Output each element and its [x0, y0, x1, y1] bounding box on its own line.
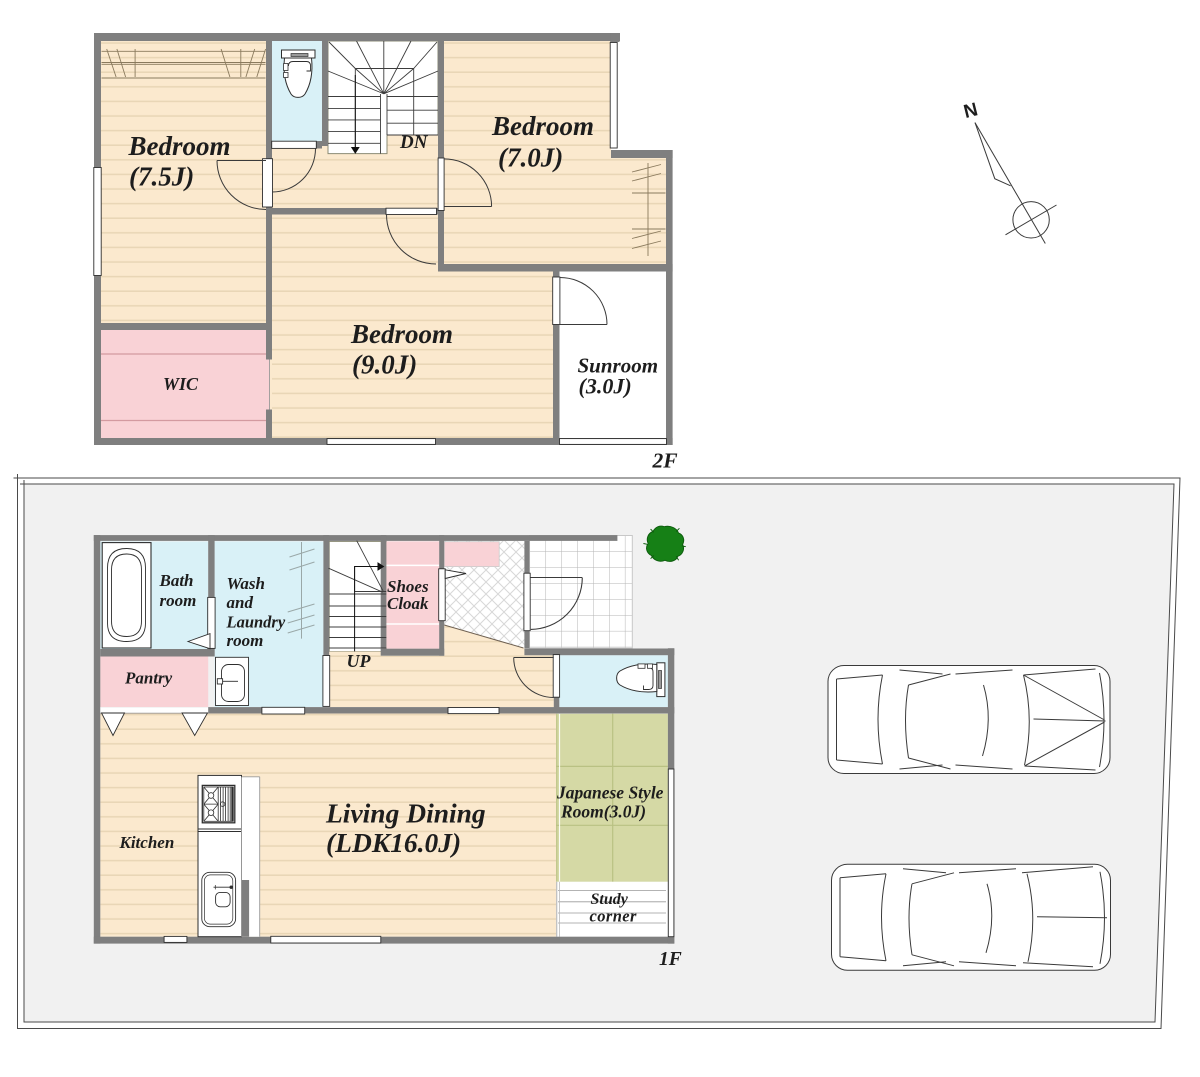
svg-text:Kitchen: Kitchen — [119, 833, 175, 852]
svg-text:Study: Study — [591, 891, 629, 908]
svg-text:2F: 2F — [652, 449, 678, 473]
svg-text:Bedroom: Bedroom — [350, 319, 453, 349]
svg-text:Japanese Style: Japanese Style — [556, 783, 664, 803]
svg-text:room: room — [160, 591, 197, 610]
svg-text:Living Dining: Living Dining — [325, 798, 486, 829]
svg-text:WIC: WIC — [163, 374, 199, 394]
svg-text:Pantry: Pantry — [124, 669, 173, 688]
svg-text:room: room — [227, 631, 264, 650]
svg-text:Bedroom: Bedroom — [491, 111, 594, 141]
svg-text:Laundry: Laundry — [226, 613, 286, 632]
svg-text:Room(3.0J): Room(3.0J) — [560, 802, 646, 822]
svg-text:DN: DN — [399, 132, 429, 153]
svg-text:corner: corner — [590, 907, 637, 926]
svg-text:Bath: Bath — [159, 571, 194, 590]
svg-text:Cloak: Cloak — [387, 594, 429, 613]
svg-text:Bedroom: Bedroom — [128, 131, 231, 161]
svg-text:1F: 1F — [659, 949, 682, 970]
svg-text:(9.0J): (9.0J) — [352, 350, 417, 380]
svg-text:(7.5J): (7.5J) — [129, 162, 194, 192]
svg-text:(LDK16.0J): (LDK16.0J) — [326, 827, 461, 858]
svg-text:(3.0J): (3.0J) — [579, 374, 632, 399]
svg-text:and: and — [227, 593, 254, 612]
svg-text:(7.0J): (7.0J) — [498, 143, 563, 173]
svg-text:UP: UP — [347, 651, 372, 671]
svg-text:Wash: Wash — [227, 574, 265, 593]
